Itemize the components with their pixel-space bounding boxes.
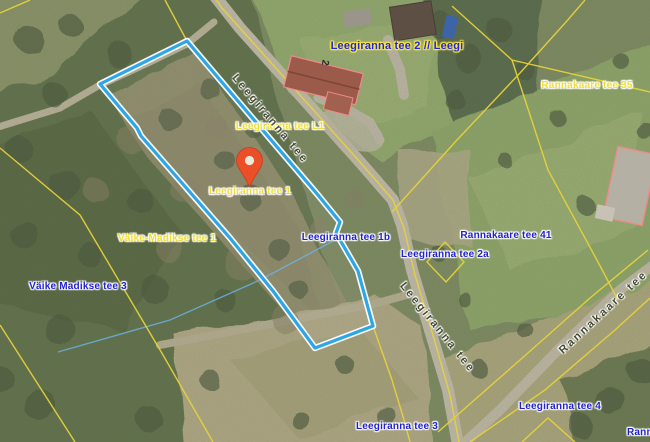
map-viewport[interactable]: Leegiranna tee 2 // Leegi Rannakaare tee… bbox=[0, 0, 650, 442]
satellite-basemap bbox=[0, 0, 650, 442]
building-top-shed bbox=[389, 1, 436, 41]
